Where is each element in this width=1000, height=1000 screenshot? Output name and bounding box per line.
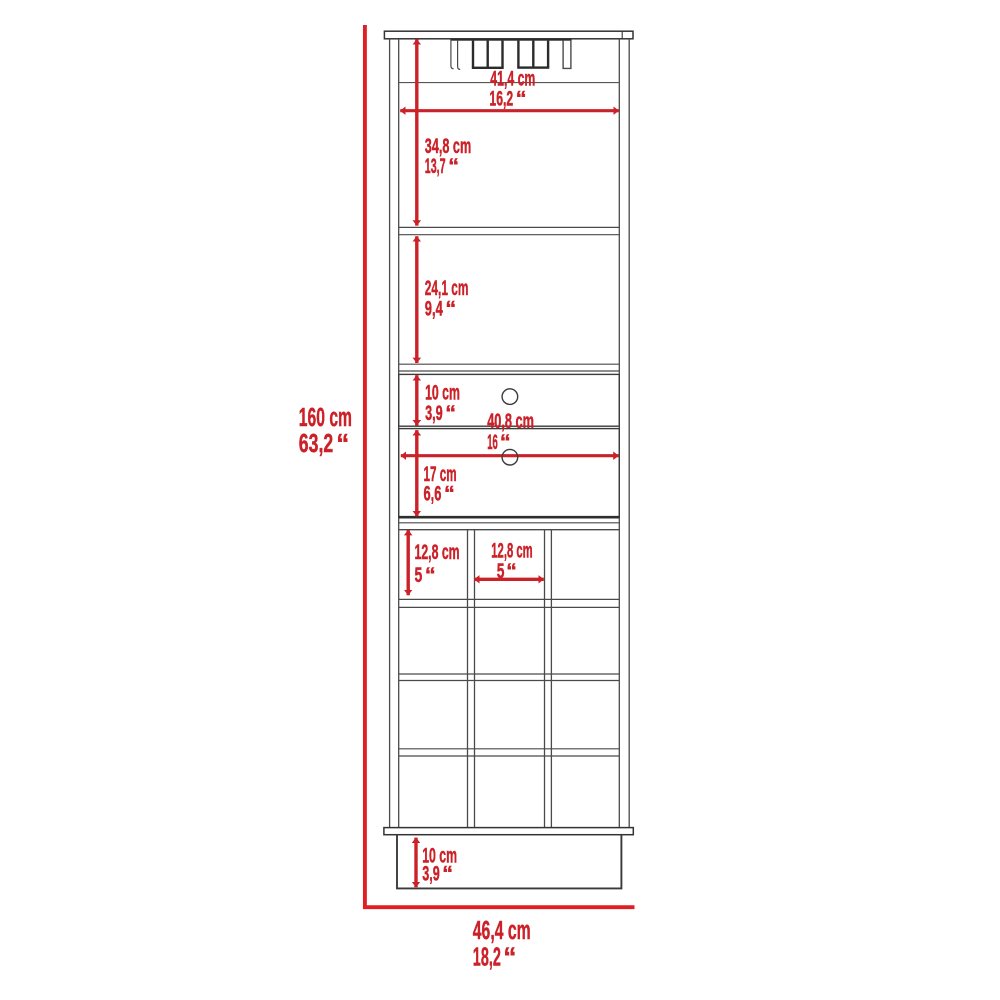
- svg-text:13,7: 13,7: [425, 155, 446, 178]
- svg-text:18,2: 18,2: [473, 942, 501, 972]
- svg-text:“: “: [448, 154, 459, 178]
- svg-text:46,4 cm: 46,4 cm: [473, 915, 531, 945]
- svg-text:63,2: 63,2: [299, 428, 333, 458]
- svg-text:16: 16: [487, 431, 498, 454]
- svg-text:9,4: 9,4: [425, 298, 443, 321]
- svg-text:5: 5: [415, 564, 423, 587]
- svg-text:16,2: 16,2: [489, 88, 513, 111]
- svg-text:“: “: [336, 428, 349, 458]
- svg-text:3,9: 3,9: [425, 402, 443, 425]
- svg-text:“: “: [445, 401, 456, 425]
- svg-text:“: “: [503, 942, 516, 972]
- svg-text:12,8 cm: 12,8 cm: [415, 541, 460, 564]
- svg-text:6,6: 6,6: [424, 482, 442, 505]
- svg-text:“: “: [444, 481, 455, 505]
- svg-text:“: “: [506, 560, 517, 583]
- svg-text:“: “: [516, 87, 527, 111]
- svg-text:“: “: [445, 297, 456, 321]
- svg-text:3,9: 3,9: [422, 863, 440, 886]
- svg-text:5: 5: [497, 560, 505, 583]
- svg-text:“: “: [442, 862, 453, 886]
- svg-text:“: “: [425, 563, 436, 587]
